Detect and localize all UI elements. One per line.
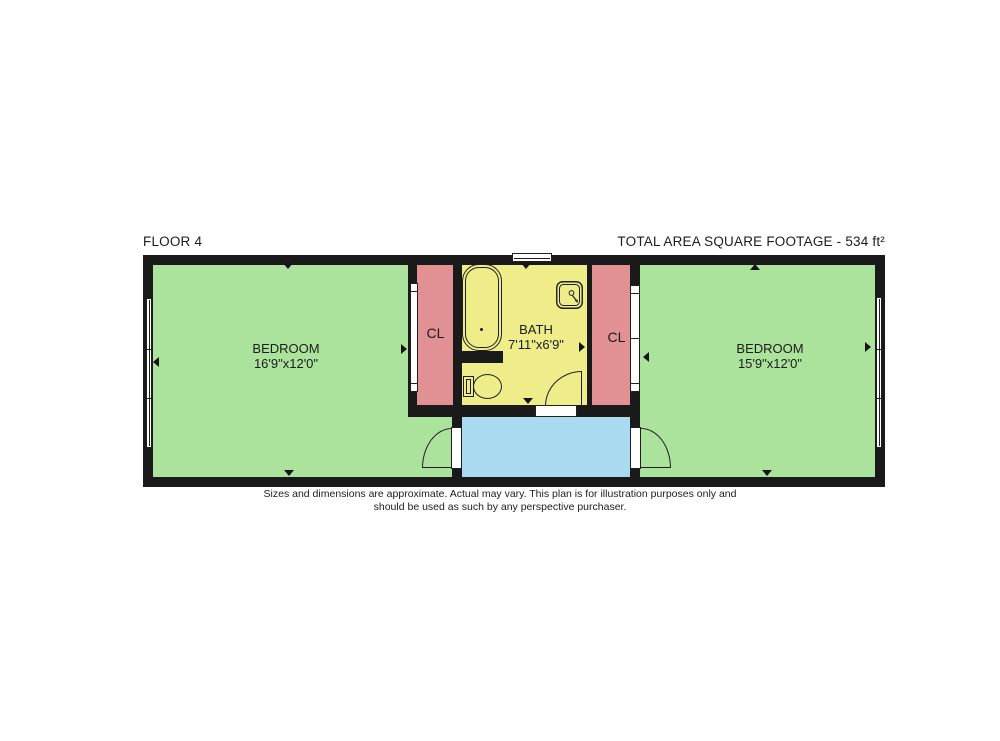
bath-name: BATH bbox=[496, 322, 576, 337]
marker-closet-left-door-icon bbox=[401, 344, 407, 354]
hall-area bbox=[462, 417, 630, 477]
disclaimer: Sizes and dimensions are approximate. Ac… bbox=[0, 488, 1000, 513]
bedroom-right-dims: 15'9"x12'0" bbox=[690, 356, 850, 371]
bedroom-left-dims: 16'9"x12'0" bbox=[206, 356, 366, 371]
bedroom-left-room bbox=[153, 265, 408, 477]
floor-label: FLOOR 4 bbox=[143, 234, 202, 249]
bedroom-right-label: BEDROOM 15'9"x12'0" bbox=[690, 341, 850, 371]
marker-bedroom-right-bottom-icon bbox=[762, 470, 772, 476]
marker-bath-right-icon bbox=[579, 342, 585, 352]
marker-bath-window-icon bbox=[521, 263, 531, 269]
window-right-icon bbox=[876, 297, 882, 448]
disclaimer-line-1: Sizes and dimensions are approximate. Ac… bbox=[0, 488, 1000, 501]
bedroom-left-name: BEDROOM bbox=[206, 341, 366, 356]
plan-header: FLOOR 4 TOTAL AREA SQUARE FOOTAGE - 534 … bbox=[143, 234, 885, 249]
bedroom-right-name: BEDROOM bbox=[690, 341, 850, 356]
bath-dims: 7'11"x6'9" bbox=[496, 337, 576, 352]
window-bath-icon bbox=[512, 253, 552, 262]
marker-closet-right-door-icon bbox=[643, 352, 649, 362]
window-left-icon bbox=[146, 298, 152, 448]
disclaimer-line-2: should be used as such by any perspectiv… bbox=[0, 501, 1000, 514]
marker-bedroom-left-top-icon bbox=[283, 263, 293, 269]
bath-label: BATH 7'11"x6'9" bbox=[496, 322, 576, 352]
marker-bedroom-left-bottom-icon bbox=[284, 470, 294, 476]
marker-window-right-icon bbox=[865, 342, 871, 352]
closet-left-label: CL bbox=[415, 325, 456, 341]
bath-door-threshold bbox=[535, 405, 577, 417]
hall-door-right-leaf bbox=[630, 427, 641, 469]
bedroom-left-label: BEDROOM 16'9"x12'0" bbox=[206, 341, 366, 371]
marker-window-left-icon bbox=[153, 357, 159, 367]
closet-right-label: CL bbox=[595, 329, 638, 345]
bedroom-right-room bbox=[640, 265, 875, 477]
floor-plan: BEDROOM 16'9"x12'0" BEDROOM 15'9"x12'0" … bbox=[143, 255, 885, 487]
marker-bath-door-icon bbox=[523, 398, 533, 404]
total-area-label: TOTAL AREA SQUARE FOOTAGE - 534 ft² bbox=[617, 234, 885, 249]
hall-door-left-leaf bbox=[451, 427, 462, 469]
bath-wall-stub bbox=[460, 351, 503, 363]
marker-bedroom-right-top-icon bbox=[750, 264, 760, 270]
sink-icon bbox=[556, 281, 583, 309]
